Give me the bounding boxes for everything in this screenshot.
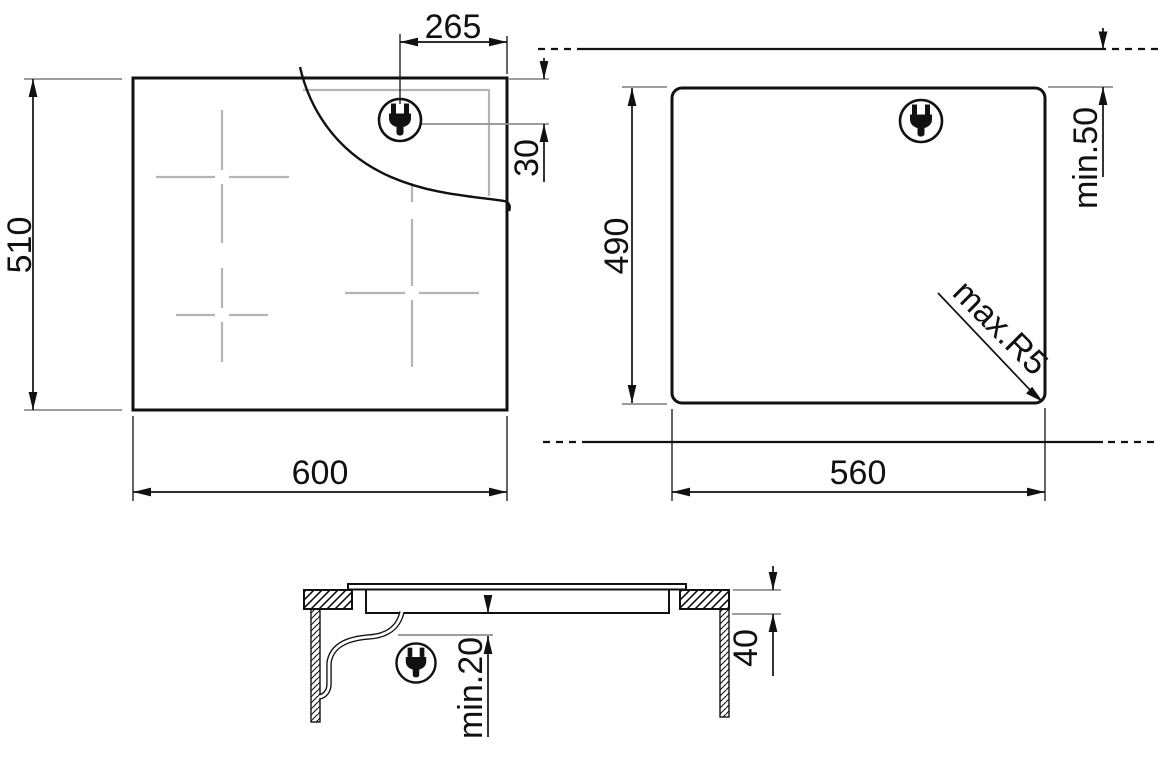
dim-510-label: 510 (1, 217, 39, 274)
worktop-section-left (304, 590, 352, 609)
dim-40-label: 40 (727, 629, 765, 667)
dim-min20-label: min.20 (452, 637, 490, 739)
power-plug-icon (379, 99, 421, 141)
installation-diagram-page: 510 600 265 30 (0, 0, 1174, 755)
power-plug-icon (900, 100, 942, 142)
hob-body (366, 590, 669, 614)
dim-30-label: 30 (508, 139, 546, 177)
power-plug-icon (396, 643, 435, 682)
dim-265-label: 265 (425, 8, 482, 46)
installation-diagram: 510 600 265 30 (0, 0, 1174, 755)
cabinet-panel-left (311, 609, 320, 722)
dim-min50-label: min.50 (1067, 107, 1105, 209)
worktop-section-right (680, 590, 729, 609)
background (0, 0, 1174, 755)
dim-560-label: 560 (830, 454, 887, 492)
dim-490-label: 490 (598, 218, 636, 275)
dim-600-label: 600 (292, 454, 349, 492)
